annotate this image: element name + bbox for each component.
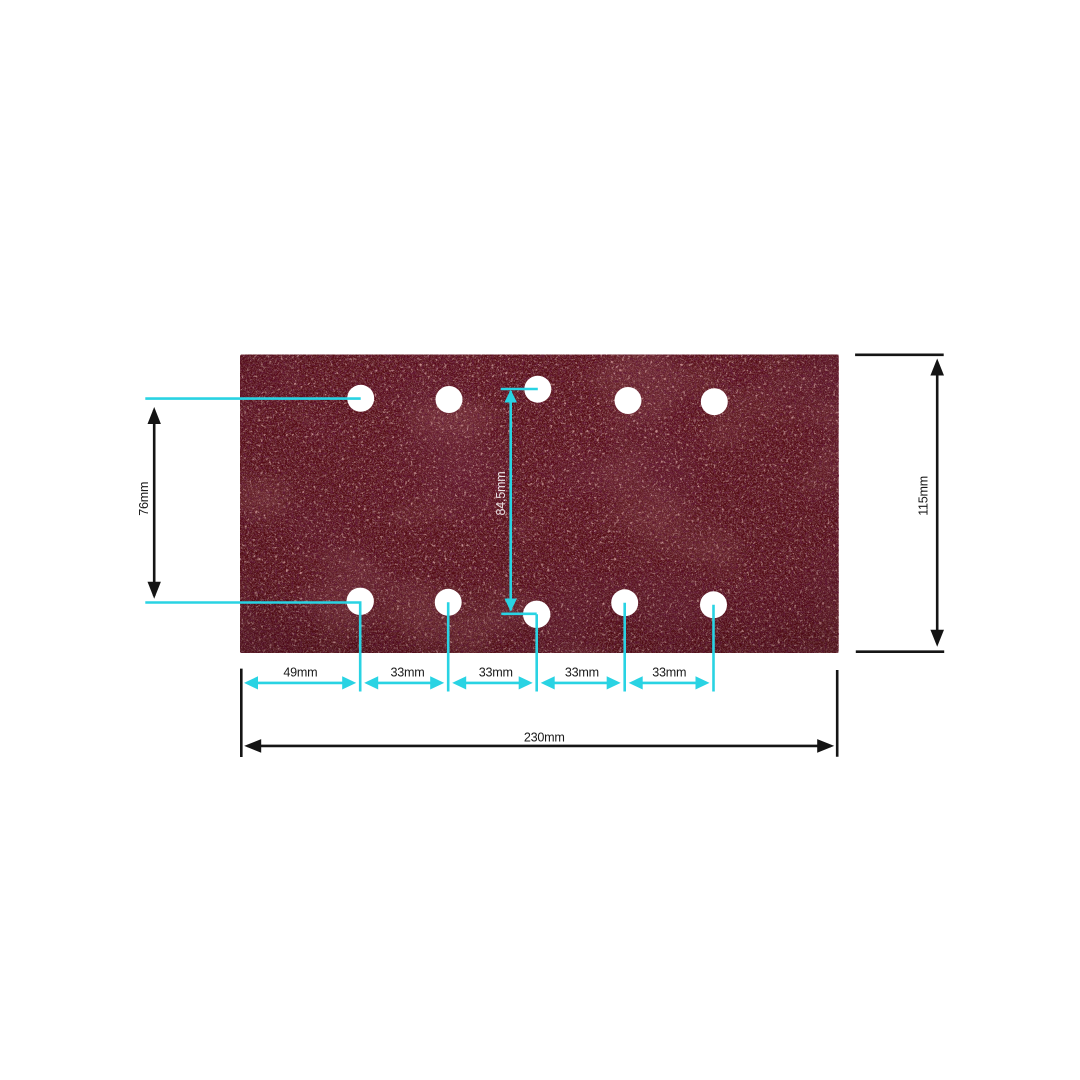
svg-text:33mm: 33mm bbox=[479, 666, 513, 680]
svg-text:84,5mm: 84,5mm bbox=[494, 472, 508, 516]
svg-text:230mm: 230mm bbox=[524, 731, 565, 745]
svg-text:33mm: 33mm bbox=[565, 666, 599, 680]
svg-text:33mm: 33mm bbox=[391, 666, 425, 680]
svg-text:33mm: 33mm bbox=[652, 666, 686, 680]
svg-text:76mm: 76mm bbox=[137, 482, 151, 516]
svg-text:115mm: 115mm bbox=[916, 476, 930, 516]
svg-text:49mm: 49mm bbox=[283, 666, 317, 680]
